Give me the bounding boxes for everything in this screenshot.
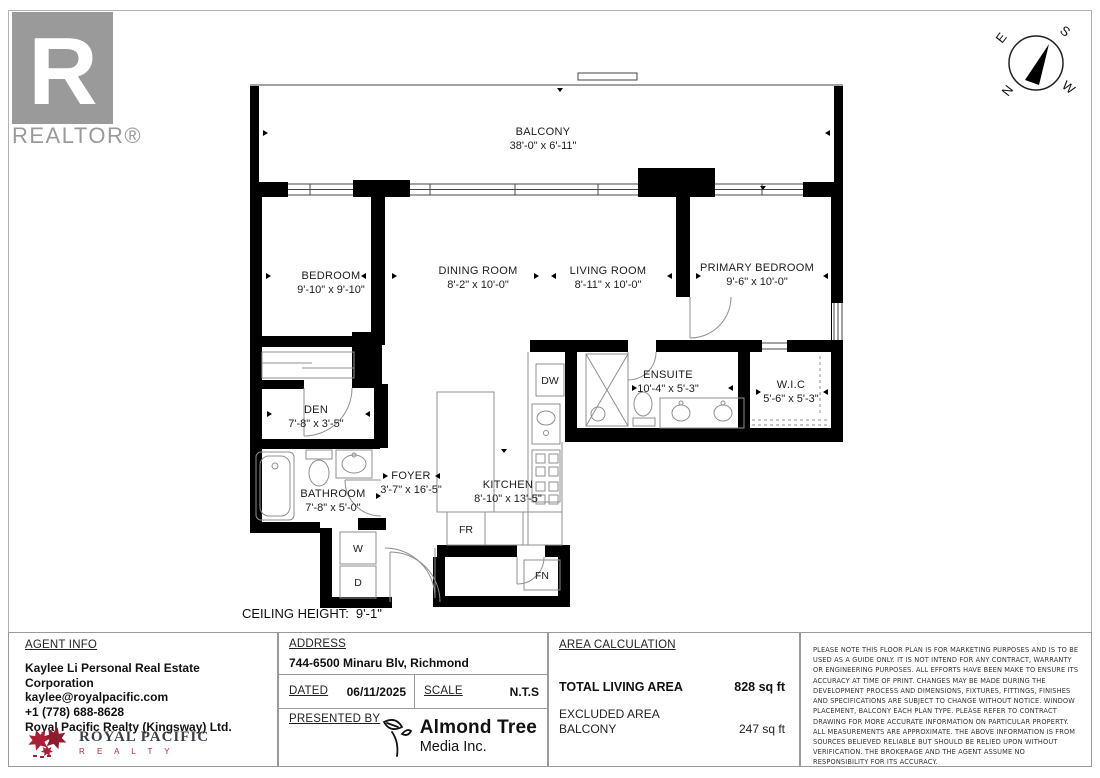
svg-text:3'-7" x 16'-5": 3'-7" x 16'-5": [380, 484, 442, 496]
furnace-label: FN: [535, 570, 549, 582]
dated-value: 06/11/2025: [347, 685, 406, 699]
dishwasher-label: DW: [541, 375, 559, 387]
disclaimer-text: PLEASE NOTE THIS FLOOR PLAN IS FOR MARKE…: [801, 633, 1091, 768]
room-label-balcony: BALCONY38'-0" x 6'-11": [510, 126, 577, 152]
fridge-label: FR: [459, 524, 473, 536]
svg-text:DEN: DEN: [304, 404, 328, 416]
room-label-ensuite: ENSUITE10'-4" x 5'-3": [637, 369, 699, 395]
scale-value: N.T.S: [510, 685, 539, 699]
svg-text:BATHROOM: BATHROOM: [300, 488, 365, 500]
agent-info-panel: AGENT INFO Kaylee Li Personal Real Estat…: [8, 632, 278, 767]
svg-text:9'-10" x 9'-10": 9'-10" x 9'-10": [297, 284, 365, 296]
svg-text:R: R: [28, 18, 97, 125]
room-label-bathroom: BATHROOM7'-8" x 5'-0": [300, 488, 365, 514]
dated-label: DATED: [289, 685, 328, 697]
floorplan-sheet: { "branding": { "realtor": "REALTOR®" },…: [0, 0, 1100, 778]
svg-text:BALCONY: BALCONY: [516, 126, 571, 138]
disclaimer-panel: PLEASE NOTE THIS FLOOR PLAN IS FOR MARKE…: [800, 632, 1092, 767]
room-label-dining: DINING ROOM8'-2" x 10'-0": [438, 265, 517, 291]
excluded-area-label: EXCLUDED AREA: [559, 707, 660, 721]
svg-text:8'-2" x 10'-0": 8'-2" x 10'-0": [447, 279, 509, 291]
address-value: 744-6500 Minaru Blv, Richmond: [289, 656, 469, 670]
area-calculation-panel: AREA CALCULATION TOTAL LIVING AREA 828 s…: [548, 632, 800, 767]
almond-tree-name: Almond Tree: [420, 717, 537, 739]
total-living-area-label: TOTAL LIVING AREA: [559, 680, 683, 694]
dryer-label: D: [354, 577, 362, 589]
realtor-logo-icon: R REALTOR®: [12, 12, 142, 148]
svg-text:8'-11" x 10'-0": 8'-11" x 10'-0": [575, 279, 642, 291]
svg-text:5'-6" x 5'-3": 5'-6" x 5'-3": [763, 393, 819, 405]
walls: [250, 86, 843, 608]
presented-by-label: PRESENTED BY: [289, 713, 380, 725]
room-label-bedroom: BEDROOM9'-10" x 9'-10": [297, 270, 365, 296]
royal-pacific-name: ROYAL PACIFIC: [79, 729, 209, 746]
windows: [250, 73, 843, 349]
almond-tree-logo: Almond Tree Media Inc.: [380, 714, 537, 758]
svg-text:KITCHEN: KITCHEN: [483, 479, 533, 491]
room-label-den: DEN7'-8" x 3'-5": [288, 404, 344, 430]
svg-text:LIVING ROOM: LIVING ROOM: [570, 265, 647, 277]
svg-text:8'-10" x 13'-5": 8'-10" x 13'-5": [474, 493, 542, 505]
compass-n: N: [999, 82, 1017, 99]
royal-pacific-realty: R E A L T Y: [79, 747, 209, 756]
svg-text:38'-0" x 6'-11": 38'-0" x 6'-11": [510, 140, 577, 152]
compass-s: S: [1057, 23, 1073, 40]
address-panel: ADDRESS 744-6500 Minaru Blv, Richmond DA…: [278, 632, 548, 767]
area-heading: AREA CALCULATION: [559, 639, 676, 651]
room-label-living: LIVING ROOM8'-11" x 10'-0": [570, 265, 647, 291]
room-label-foyer: FOYER3'-7" x 16'-5": [380, 470, 442, 496]
ceiling-height: CEILING HEIGHT:9'-1": [242, 606, 382, 621]
svg-text:PRIMARY BEDROOM: PRIMARY BEDROOM: [700, 262, 814, 274]
address-heading: ADDRESS: [289, 638, 346, 650]
svg-text:W.I.C: W.I.C: [777, 379, 805, 391]
sprout-icon: [380, 714, 414, 758]
svg-text:ENSUITE: ENSUITE: [643, 369, 693, 381]
realtor-wordmark: REALTOR®: [12, 123, 142, 148]
total-living-area-value: 828 sq ft: [734, 680, 785, 694]
svg-text:7'-8" x 3'-5": 7'-8" x 3'-5": [288, 418, 344, 430]
room-label-primary: PRIMARY BEDROOM9'-6" x 10'-0": [700, 262, 814, 288]
excluded-room-label: BALCONY: [559, 722, 616, 736]
royal-pacific-logo: ROYAL PACIFIC R E A L T Y: [25, 725, 209, 759]
excluded-area-value: 247 sq ft: [739, 722, 785, 736]
svg-text:FOYER: FOYER: [391, 470, 430, 482]
svg-text:10'-4" x 5'-3": 10'-4" x 5'-3": [637, 383, 699, 395]
compass-e: E: [993, 30, 1010, 46]
svg-text:7'-8" x 5'-0": 7'-8" x 5'-0": [305, 502, 361, 514]
compass-w: W: [1059, 78, 1078, 98]
maple-leaf-icon: [25, 725, 71, 759]
svg-text:BEDROOM: BEDROOM: [302, 270, 361, 282]
room-label-wic: W.I.C5'-6" x 5'-3": [763, 379, 819, 405]
washer-label: W: [353, 543, 363, 555]
scale-label: SCALE: [424, 685, 463, 697]
compass-icon: E S N W: [993, 23, 1079, 99]
agent-email: kaylee@royalpacific.com: [25, 690, 271, 705]
svg-text:DINING ROOM: DINING ROOM: [438, 265, 517, 277]
agent-phone: +1 (778) 688-8628: [25, 705, 271, 720]
agent-company: Kaylee Li Personal Real Estate Corporati…: [25, 661, 271, 690]
almond-tree-sub: Media Inc.: [420, 739, 537, 755]
svg-text:9'-6" x 10'-0": 9'-6" x 10'-0": [726, 276, 788, 288]
agent-info-heading: AGENT INFO: [25, 639, 97, 651]
